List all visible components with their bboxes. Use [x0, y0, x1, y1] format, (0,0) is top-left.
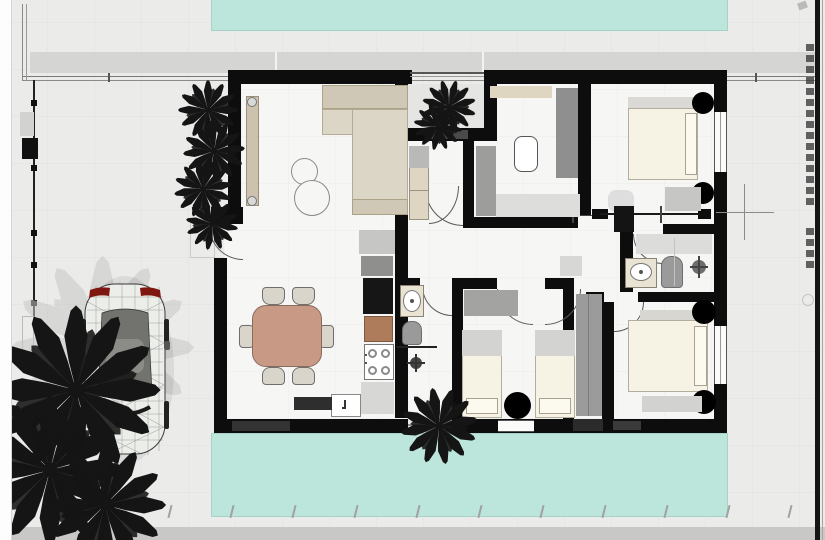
palm-tree-icon [180, 192, 245, 257]
threshold [573, 419, 603, 431]
drawing-frame-line [815, 0, 820, 540]
fence-post [31, 230, 37, 236]
dimension-line [744, 184, 745, 240]
office-table [514, 136, 538, 172]
window [498, 420, 534, 432]
bed-pillow [539, 398, 571, 414]
dimension-line [716, 212, 774, 213]
frame-stamp-circle [802, 294, 814, 306]
stove-knob-dot [365, 354, 367, 356]
bed-blanket [462, 330, 502, 356]
bench [642, 396, 702, 412]
wardrobe [464, 290, 518, 316]
closet-shelf-line [409, 190, 429, 191]
wardrobe [576, 294, 602, 416]
wall-corridor-top [463, 217, 578, 228]
wall-bedroom3-left [602, 302, 614, 419]
gate-post [22, 138, 38, 159]
dining-table [252, 305, 322, 367]
sink-faucet-dot [410, 299, 414, 303]
bed-blanket [535, 330, 575, 356]
office-daybed [496, 194, 580, 217]
wall-hall-right [463, 141, 474, 228]
fence-tick-top [108, 73, 110, 82]
sideboard-knob [247, 97, 257, 107]
frame-smudge [797, 1, 808, 11]
nightstand [692, 300, 716, 324]
stove-knob-dot [365, 362, 367, 364]
wardrobe-line [588, 294, 589, 416]
nightstand [692, 92, 714, 114]
side-table-large [294, 180, 330, 216]
washer [614, 206, 634, 232]
wall-left-lower [214, 258, 227, 433]
sofa-chaise [352, 109, 408, 201]
nightstand [504, 392, 531, 419]
floor-plan-canvas [0, 0, 825, 540]
sink-island [331, 394, 361, 417]
wall-patio-right [484, 70, 497, 128]
threshold [232, 421, 290, 431]
shower-arm [415, 354, 417, 372]
utility-box [20, 112, 34, 136]
threshold [613, 421, 641, 430]
dining-chair [262, 367, 285, 385]
window-line [720, 112, 721, 172]
stove-burner [381, 349, 390, 358]
bed-pillow [694, 326, 707, 386]
wall-top-right [484, 70, 727, 84]
page-margin-left [0, 0, 12, 540]
wall-corridor-bottom [463, 278, 497, 289]
bed-pillow [685, 113, 697, 175]
patio-window-line [410, 72, 484, 74]
dining-chair [292, 287, 315, 305]
kitchen-cabinet [359, 230, 395, 254]
sideboard-knob [247, 196, 257, 206]
kitchen-counter [361, 382, 394, 414]
door-symbol-tick [660, 206, 662, 223]
kitchen-bench [294, 397, 332, 410]
office-wardrobe-right [556, 88, 578, 178]
sink-faucet-dot [342, 407, 346, 409]
sofa-back [322, 85, 408, 109]
drawing-frame-line-outer [822, 0, 823, 540]
corridor-cabinet [560, 256, 582, 276]
sink-faucet-dot [639, 270, 643, 274]
dining-chair [292, 367, 315, 385]
fence-corner-line [26, 4, 27, 81]
sofa-armrest [352, 199, 408, 215]
wall-corridor-bottom [545, 278, 563, 289]
dining-chair [262, 287, 285, 305]
wall-bath1-bottom [638, 292, 727, 302]
dresser [665, 187, 701, 211]
counter-brown [364, 316, 393, 342]
office-wardrobe-left [476, 146, 496, 216]
fence-tick [787, 505, 792, 518]
window-line [720, 326, 721, 384]
illegible-vertical-text-marks [806, 44, 814, 209]
stove-burner [368, 366, 377, 375]
toilet [402, 321, 422, 345]
kitchen-appliance [361, 256, 393, 276]
office-shelf [490, 86, 552, 98]
illegible-vertical-text-marks [806, 228, 814, 268]
pool-top [211, 0, 728, 31]
fence-tick-top [755, 73, 757, 82]
shower-pole [674, 238, 675, 286]
toilet [661, 256, 683, 288]
shower-divider [397, 346, 437, 348]
stove-burner [381, 366, 390, 375]
wall-top-left [228, 70, 412, 84]
stove-burner [368, 349, 377, 358]
fence-post [31, 100, 37, 106]
shower-arm [698, 256, 700, 278]
fridge [363, 278, 393, 314]
fence-post [31, 165, 37, 171]
wall-bath1-top [663, 224, 714, 234]
fence-corner-line [22, 4, 23, 81]
